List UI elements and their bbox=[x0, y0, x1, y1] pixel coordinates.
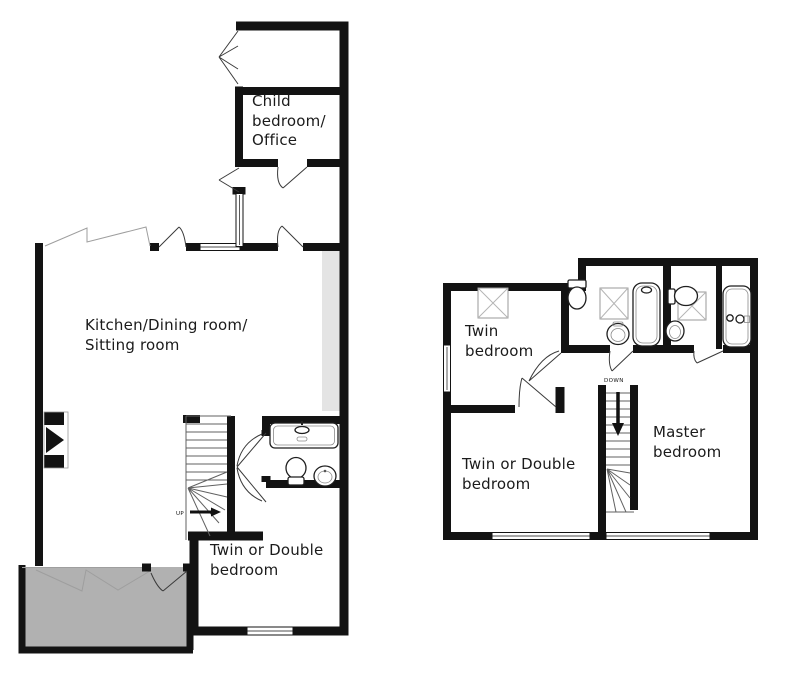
stairs-down-label: DOWN bbox=[604, 378, 624, 384]
shower-tray-icon bbox=[600, 288, 628, 319]
sink-icon bbox=[666, 321, 684, 341]
room-label-gf-twin-or-double-bedroom: Twin or Double bedroom bbox=[210, 541, 323, 580]
shower-tray-icon bbox=[478, 288, 508, 318]
kitchen-bifold-doors bbox=[45, 227, 150, 246]
bathroom-door bbox=[237, 433, 266, 467]
stairs-up-label: UP bbox=[176, 511, 184, 517]
first-floor-plan: DOWN bbox=[443, 258, 758, 540]
gf-stairs: UP bbox=[176, 416, 231, 540]
twin-bedroom-door bbox=[529, 351, 561, 381]
room-label-master-bedroom: Master bedroom bbox=[653, 423, 721, 462]
ensuite-door bbox=[694, 351, 723, 363]
room-label-child-bedroom-office: Child bedroom/ Office bbox=[252, 92, 326, 151]
bath-icon bbox=[723, 286, 751, 347]
gf-bathroom-fixtures bbox=[270, 421, 338, 486]
room-label-ff-twin-or-double-bedroom: Twin or Double bedroom bbox=[462, 455, 575, 494]
room-label-twin-bedroom: Twin bedroom bbox=[465, 322, 533, 361]
toilet-icon bbox=[568, 280, 586, 309]
sink-icon bbox=[314, 466, 336, 486]
fireplace bbox=[44, 412, 68, 468]
bath-icon bbox=[633, 283, 660, 346]
gf-bedroom-door bbox=[237, 467, 266, 502]
terrace bbox=[19, 564, 194, 651]
bath-icon bbox=[270, 421, 338, 448]
kitchen-door-right bbox=[278, 226, 304, 247]
kitchen-door-left bbox=[159, 227, 186, 247]
room-label-kitchen-dining-sitting: Kitchen/Dining room/ Sitting room bbox=[85, 316, 247, 355]
terrace-fill bbox=[19, 567, 190, 650]
child-room-door bbox=[278, 167, 307, 188]
kitchen-alcove-strip bbox=[322, 251, 340, 411]
toilet-icon bbox=[286, 458, 306, 486]
sink-icon bbox=[607, 322, 629, 345]
ff-stairs: DOWN bbox=[604, 378, 634, 512]
toilet-icon bbox=[668, 287, 698, 306]
bathroom-door bbox=[609, 351, 633, 371]
twin-double-bedroom-door bbox=[519, 378, 556, 407]
entrance-door bbox=[219, 31, 238, 84]
floorplan-canvas: UP bbox=[0, 0, 790, 674]
